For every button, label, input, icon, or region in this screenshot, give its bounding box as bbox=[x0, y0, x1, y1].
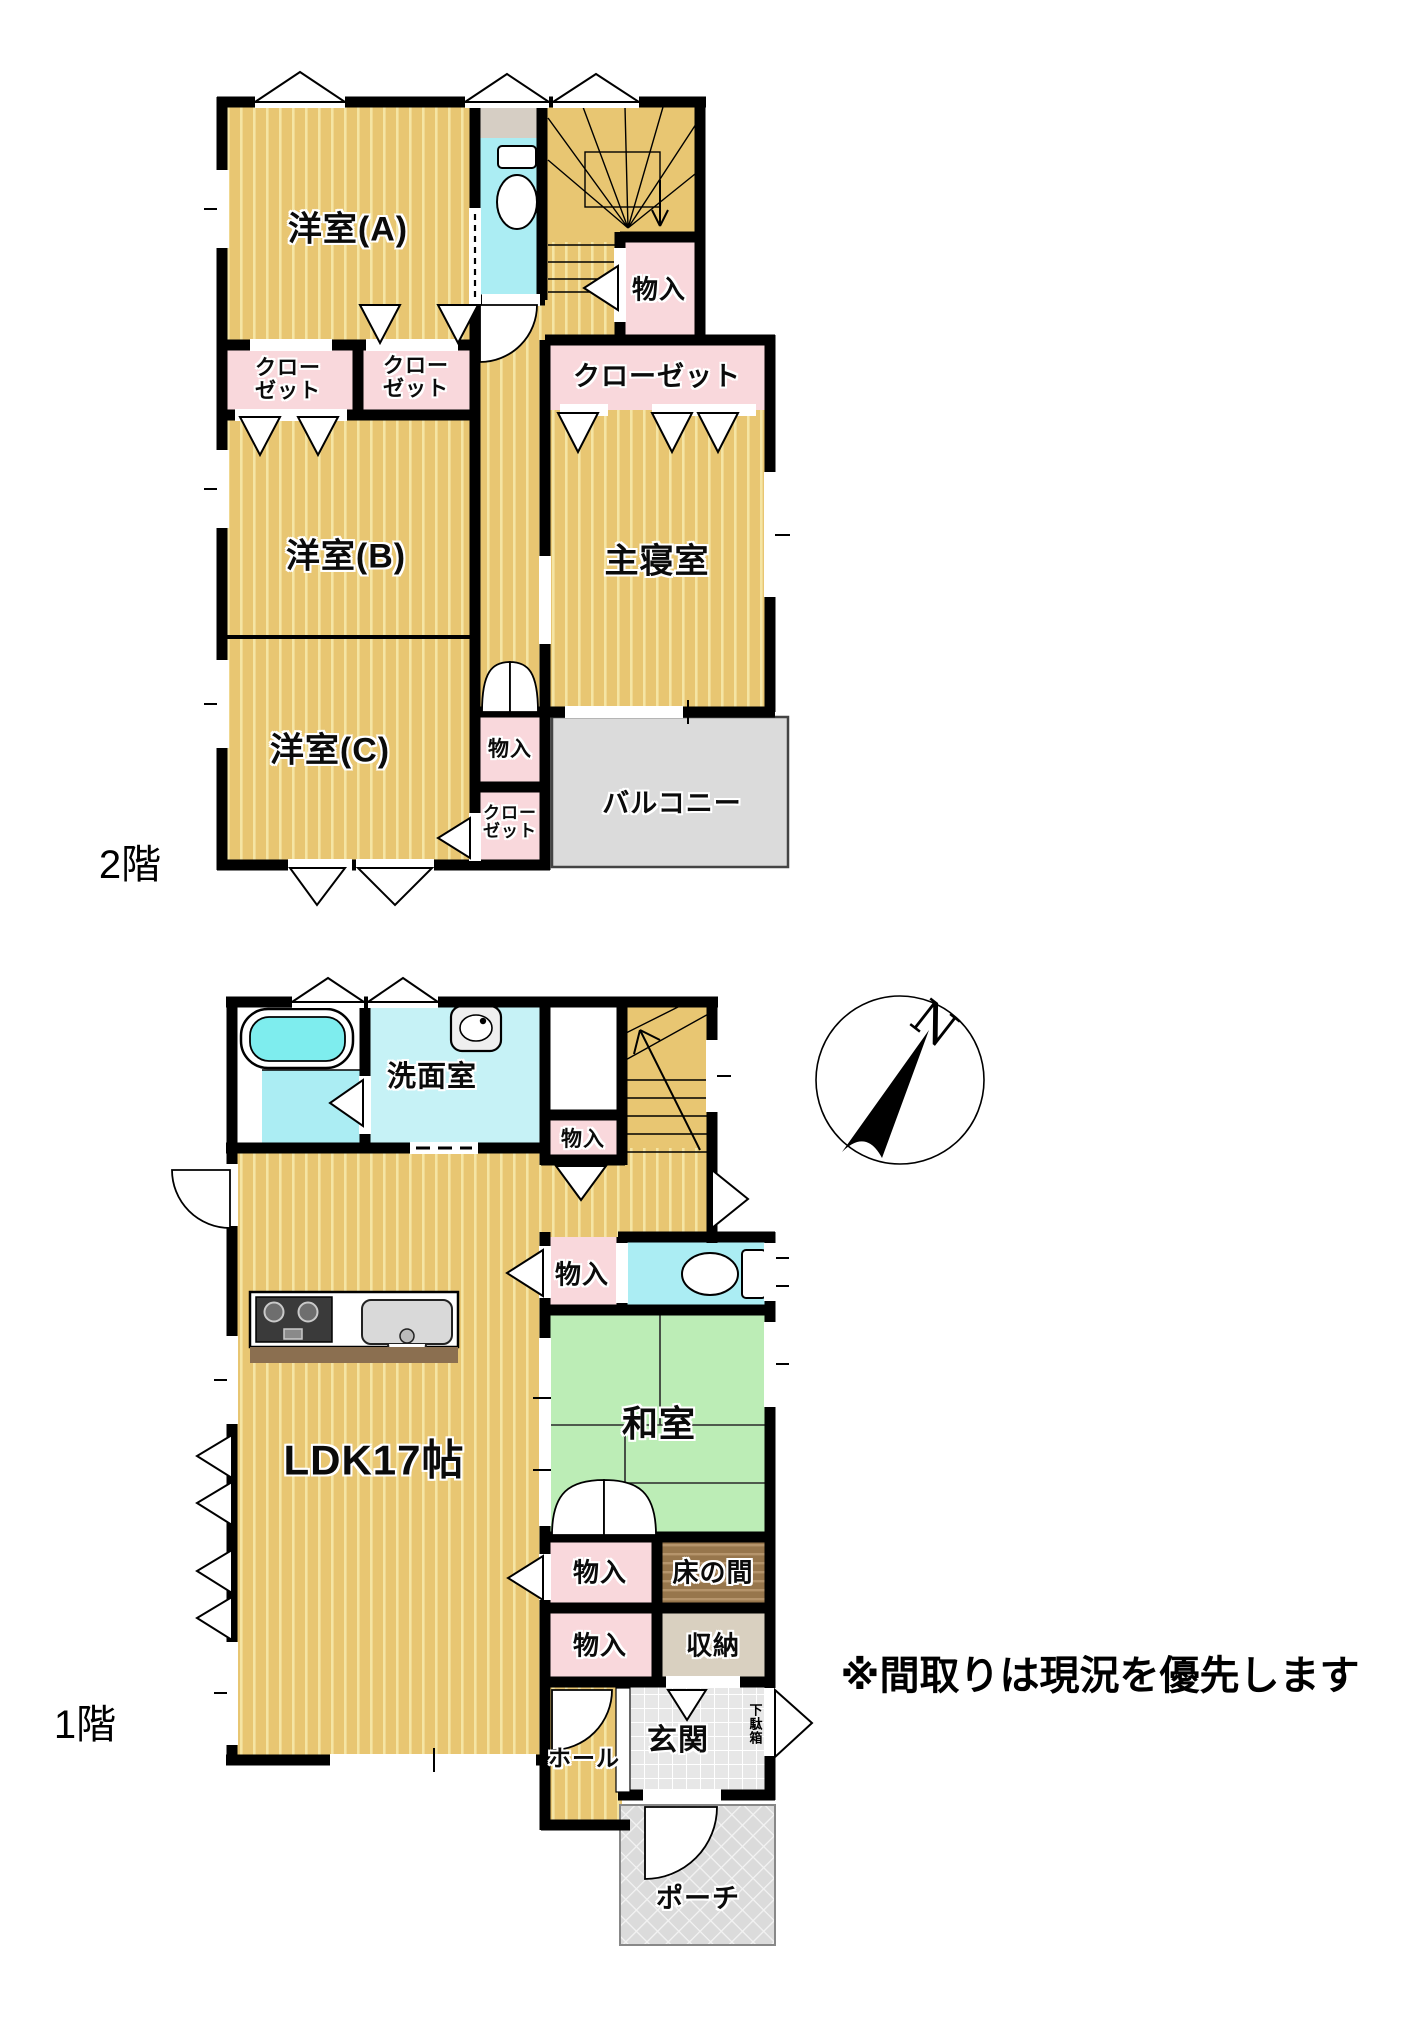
closet-line2: ゼット bbox=[483, 822, 537, 841]
room-label-master-bedroom: 主寝室 bbox=[605, 534, 710, 583]
room-label-monoiri-c: 物入 bbox=[488, 733, 532, 763]
floor-1f-plan bbox=[172, 978, 812, 1945]
floor-2f-plan bbox=[204, 72, 790, 905]
room-label-tokonoma: 床の間 bbox=[672, 1553, 753, 1590]
room-label-western-b: 洋室(B) bbox=[286, 529, 406, 578]
room-label-monoiri-stairs: 物入 bbox=[561, 1123, 605, 1153]
room-label-monoiri-2: 物入 bbox=[573, 1626, 627, 1663]
room-label-closet-a2: クローゼット bbox=[383, 355, 449, 400]
closet-line2: ゼット bbox=[255, 379, 321, 402]
room-label-monoiri-1: 物入 bbox=[573, 1553, 627, 1590]
room-label-genkan: 玄関 bbox=[647, 1715, 709, 1759]
kitchen-counter bbox=[250, 1292, 458, 1363]
closet-line1: クロー bbox=[383, 354, 449, 377]
closet-line2: ゼット bbox=[383, 377, 449, 400]
room-label-shuno: 収納 bbox=[686, 1626, 740, 1663]
room-label-closet-a1: クローゼット bbox=[255, 357, 321, 402]
room-label-closet-wide: クローゼット bbox=[573, 355, 741, 394]
room-label-monoiri-ldk: 物入 bbox=[555, 1255, 609, 1292]
floor-label-2f: 2階 bbox=[99, 832, 161, 890]
counter-shelf bbox=[250, 1347, 458, 1363]
room-label-ldk: LDK17帖 bbox=[283, 1427, 464, 1488]
closet-line1: クロー bbox=[483, 804, 537, 823]
room-label-porch: ポーチ bbox=[656, 1877, 740, 1916]
disclaimer-note: ※間取りは現況を優先します bbox=[841, 1643, 1360, 1701]
room-label-western-a: 洋室(A) bbox=[288, 202, 408, 251]
washbasin-icon bbox=[451, 1006, 501, 1051]
room-label-getabako: 下駄箱 bbox=[749, 1703, 762, 1745]
toilet-icon-2f bbox=[497, 146, 537, 229]
closet-line1: クロー bbox=[255, 356, 321, 379]
room-label-hall: ホール bbox=[548, 1739, 620, 1773]
floorplan-page: { "title": "間取り図", "note": "※間取りは現況を優先しま… bbox=[0, 0, 1412, 2038]
room-label-western-c: 洋室(C) bbox=[270, 723, 390, 772]
room-label-washroom: 洗面室 bbox=[387, 1053, 477, 1095]
toilet-icon-1f bbox=[682, 1250, 766, 1298]
floor-label-1f: 1階 bbox=[54, 1692, 116, 1750]
bathtub-icon bbox=[241, 1009, 362, 1070]
room-label-closet-c: クローゼット bbox=[483, 805, 537, 842]
room-label-monoiri-hall-2f: 物入 bbox=[632, 270, 686, 307]
room-label-washitsu: 和室 bbox=[622, 1395, 696, 1447]
toilet-2f-shelf bbox=[478, 105, 542, 138]
room-label-balcony: バルコニー bbox=[602, 782, 741, 821]
